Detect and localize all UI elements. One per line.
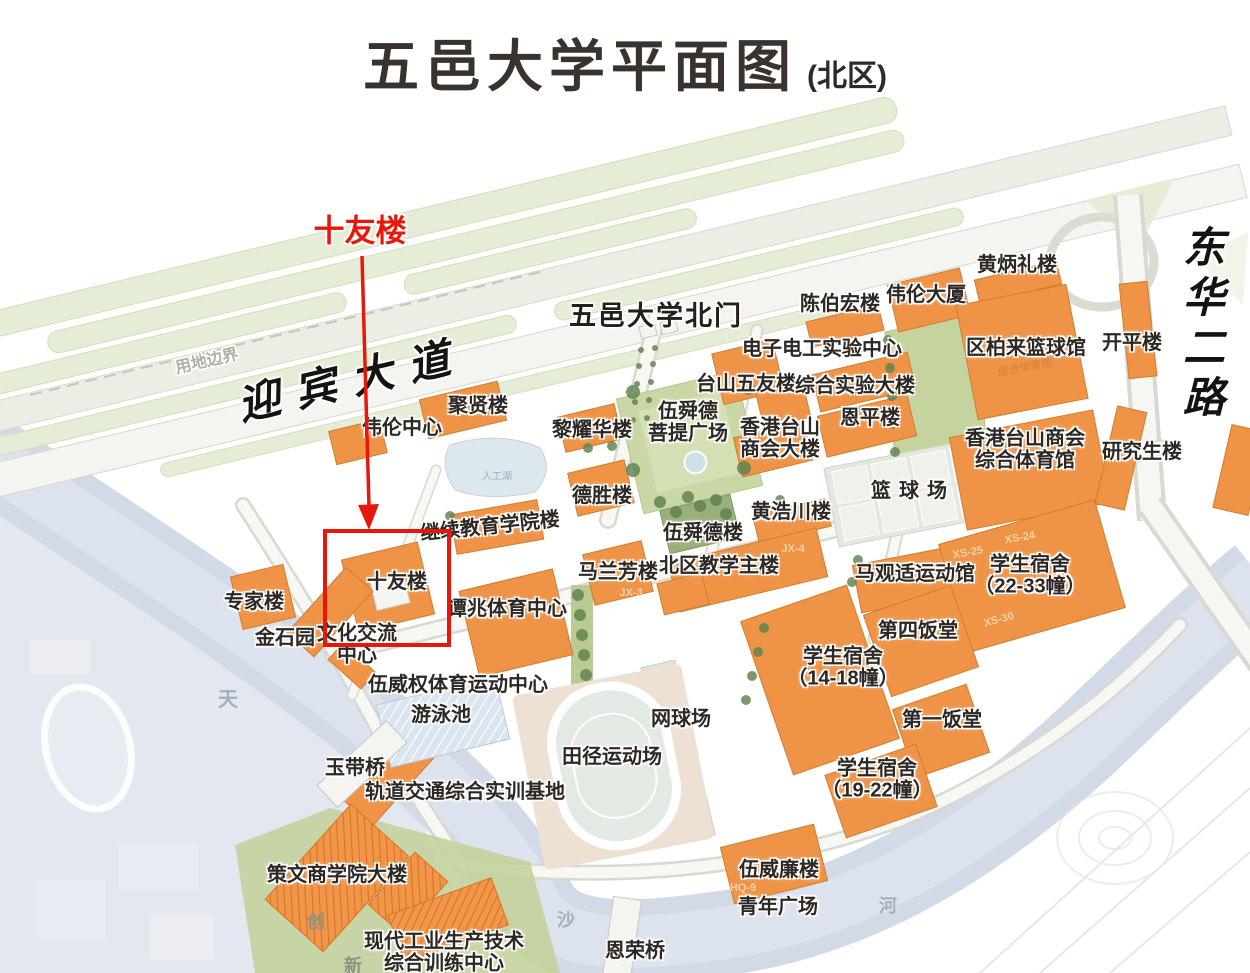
tree <box>634 381 640 387</box>
highlight-rectangle <box>323 529 451 647</box>
building <box>1119 281 1157 378</box>
tree <box>636 363 642 369</box>
tree <box>753 647 763 657</box>
tree <box>759 623 769 633</box>
tree <box>630 417 636 423</box>
basketball-court <box>910 450 951 489</box>
tree <box>646 397 652 403</box>
tree <box>710 494 722 506</box>
basketball-court <box>839 502 880 541</box>
tree <box>757 500 767 510</box>
tree <box>853 555 863 565</box>
tree <box>682 491 694 503</box>
tree <box>741 695 751 705</box>
tree <box>445 511 455 521</box>
tree <box>652 345 658 351</box>
tree <box>638 347 644 353</box>
basketball-court <box>917 486 958 525</box>
tree <box>890 447 900 457</box>
building <box>450 500 544 555</box>
tree <box>632 399 638 405</box>
tree <box>747 671 757 681</box>
basketball-court <box>871 458 912 497</box>
tree <box>626 463 640 477</box>
building <box>1213 425 1250 516</box>
tree <box>720 508 732 520</box>
campus-map-graphic <box>0 0 1250 973</box>
map-title: 五邑大学平面图 <box>363 35 797 98</box>
building <box>230 564 295 629</box>
basketball-court <box>878 494 919 533</box>
tree <box>888 419 898 429</box>
tree <box>626 385 640 399</box>
tree <box>578 649 590 661</box>
tree <box>650 361 656 367</box>
tree <box>576 629 588 641</box>
tree <box>741 381 755 395</box>
tree <box>580 669 592 681</box>
tree <box>887 391 897 401</box>
tree <box>775 495 785 505</box>
building <box>459 569 573 677</box>
tree <box>885 363 895 373</box>
tree <box>847 577 857 587</box>
map-subtitle: (北区) <box>807 60 887 93</box>
tree <box>572 589 584 601</box>
building <box>568 460 635 516</box>
athletic-track <box>512 663 715 871</box>
tree <box>654 496 666 508</box>
tree <box>883 335 893 345</box>
tree <box>644 415 650 421</box>
campus-map-page: 五邑大学平面图(北区) <box>0 0 1250 973</box>
page-title: 五邑大学平面图(北区) <box>0 22 1250 103</box>
tree <box>694 500 706 512</box>
tree <box>583 443 593 453</box>
building <box>956 284 1088 419</box>
tree <box>607 441 617 451</box>
pond <box>445 438 546 496</box>
building <box>583 541 653 606</box>
tree <box>574 609 586 621</box>
tree <box>670 506 682 518</box>
tree <box>648 379 654 385</box>
tree <box>737 461 751 475</box>
basketball-court <box>832 465 873 504</box>
